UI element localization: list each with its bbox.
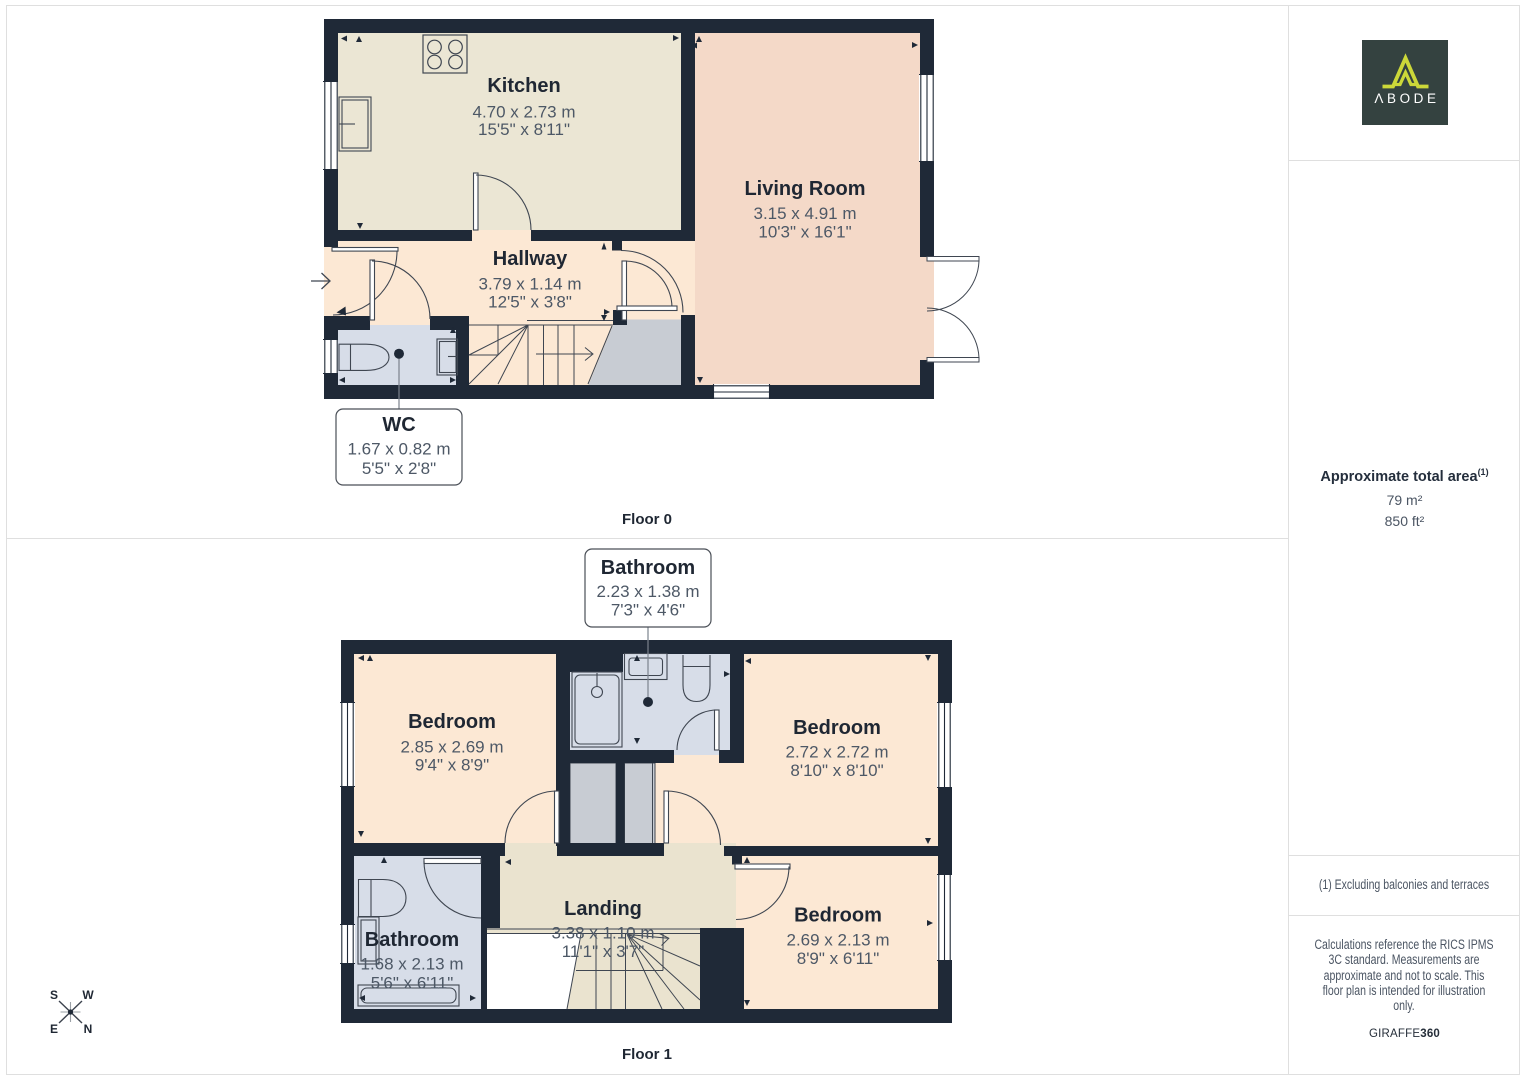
svg-text:ΛBODE: ΛBODE: [1374, 91, 1439, 106]
